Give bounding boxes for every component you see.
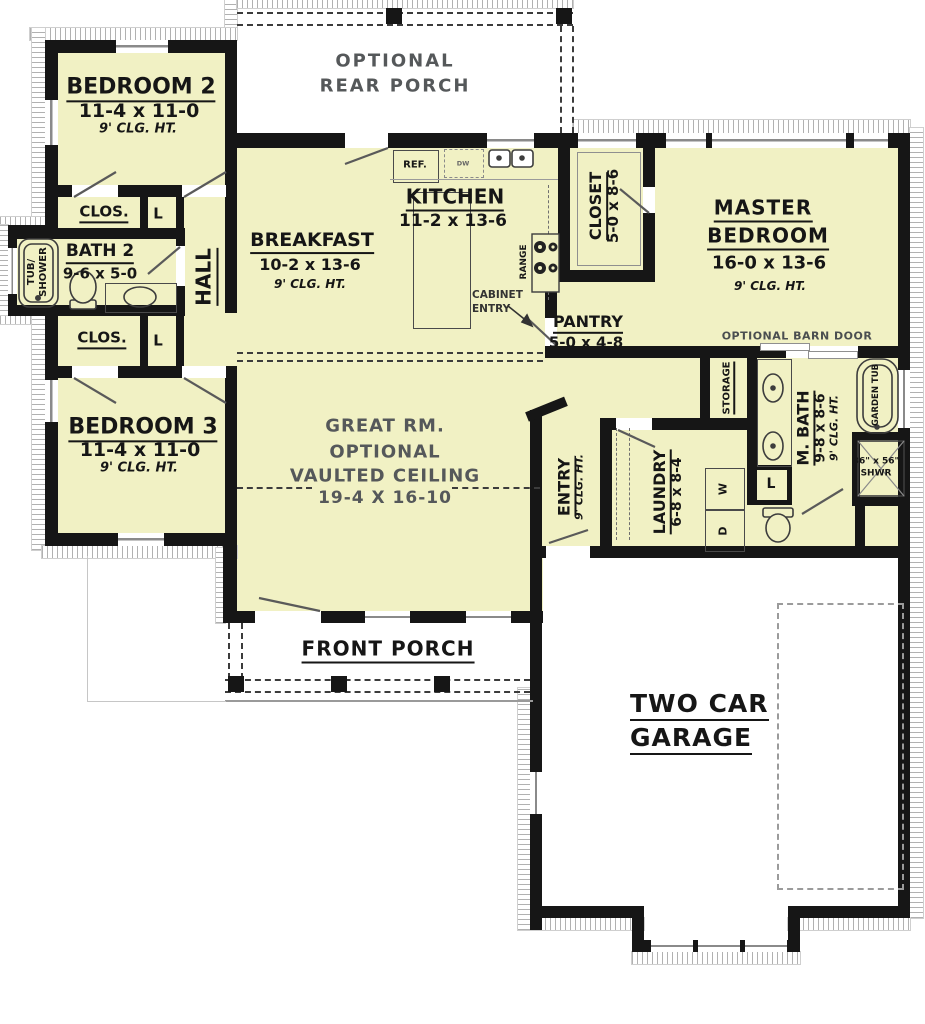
frontporch-roofline-2 (225, 691, 530, 693)
hatch-bay-left (0, 225, 8, 316)
dryer-label: D (718, 526, 731, 535)
window-greatrm-1 (365, 611, 410, 623)
master-dims: 16-0 x 13-6 (712, 254, 826, 275)
frontporch-edge-2 (241, 623, 243, 679)
window-closet-top (578, 133, 636, 148)
window-bed2-left (45, 100, 58, 145)
window-master-a (666, 133, 706, 148)
bedroom3-dims: 11-4 x 11-0 (80, 440, 201, 462)
hatch-rearporch-top (237, 0, 573, 8)
window-master-b (712, 133, 846, 148)
floor-plan: BEDROOM 2 11-4 x 11-0 9' CLG. HT. OPTION… (0, 0, 925, 1024)
mbath-label: M. BATH 9-8 x 8-6 9' CLG. HT. (794, 390, 841, 465)
wall-mbath-west (747, 358, 757, 505)
garage-door-panel-2 (698, 940, 740, 952)
hatch-garage-bl (530, 918, 644, 930)
gardentub-label: GARDEN TUB (872, 364, 882, 426)
opening-bed2-door-right (182, 185, 226, 197)
window-bed3-bottom (118, 533, 164, 546)
linen-mbath-label: L (767, 476, 776, 492)
wall-westwing-east-d (223, 533, 237, 623)
bedroom3-label: BEDROOM 3 (68, 414, 217, 439)
barn-door-note: OPTIONAL BARN DOOR (722, 331, 873, 344)
laundry-label: LAUNDRY 6-8 x 8-4 (651, 450, 685, 535)
wall-shower-bottom (852, 497, 910, 506)
shower-label: 36" x 56" SHWR (853, 456, 900, 479)
hatch-bay-top (0, 217, 45, 225)
hatch-east-side (910, 128, 923, 918)
wall-shower-top (852, 432, 910, 440)
range-label: RANGE (519, 245, 529, 280)
wall-master-west-a (643, 133, 655, 187)
clos-upper-label: CLOS. (79, 203, 128, 220)
kitchen-label: KITCHEN (406, 186, 504, 209)
kitchen-cabinet-line (548, 185, 549, 300)
wall-left-lower (45, 316, 58, 546)
master-label-1: MASTER (714, 197, 813, 220)
greatrm-label-2: OPTIONAL (329, 443, 440, 464)
storage-label: STORAGE (721, 361, 733, 414)
hatch-left-upper (32, 28, 45, 228)
breakfast-dims: 10-2 x 13-6 (259, 256, 361, 274)
garage-door-panel-3 (745, 940, 787, 952)
opening-bed3-door-left (72, 366, 118, 378)
window-bed2-top (116, 40, 168, 53)
wall-garage-bottom-left (530, 906, 644, 918)
laundry-shelf-2 (629, 428, 630, 540)
wall-linen-mbath-right (787, 465, 792, 505)
kitchen-counter-edge (390, 179, 558, 180)
pantry-label: PANTRY (553, 313, 623, 331)
wall-linen-hall-bot (176, 316, 184, 366)
hatch-bed3-bottom (42, 546, 237, 558)
master-ceiling: 9' CLG. HT. (734, 280, 806, 294)
bedroom2-label: BEDROOM 2 (66, 74, 215, 99)
kitchen-dims: 11-2 x 13-6 (399, 212, 507, 232)
bedroom2-dims: 11-4 x 11-0 (79, 101, 200, 123)
master-label-2: BEDROOM (707, 225, 829, 248)
laundry-shelf-1 (616, 428, 617, 540)
wall-linen-mbath-bottom (755, 500, 792, 505)
rearporch-post-2 (556, 8, 572, 24)
cabinet-entry-note: CABINET ENTRY (472, 289, 523, 316)
barn-door-panel-1 (760, 343, 810, 351)
greatrm-label-3: VAULTED CEILING (290, 467, 480, 488)
frontporch-column-3 (434, 676, 450, 692)
hatch-left-lower (32, 316, 45, 550)
rearporch-roofline-2 (237, 24, 573, 26)
tubshower-label: TUB/ SHOWER (26, 247, 50, 297)
bath2-dims: 9-6 x 5-0 (63, 265, 137, 282)
hatch-bed2-top (30, 28, 237, 40)
wall-kitchen-east (558, 133, 570, 282)
greatrm-label-1: GREAT RM. (325, 417, 445, 438)
wall-master-west-b (643, 213, 655, 282)
window-greatrm-2 (466, 611, 511, 623)
rearporch-roofline-1 (237, 12, 573, 14)
hatch-garage-bay (632, 952, 800, 964)
linen-lower-label: L (153, 332, 163, 349)
wall-clos-linen-bot (140, 316, 148, 366)
frontporch-column-2 (331, 676, 347, 692)
garage-label-1: TWO CAR (630, 690, 769, 719)
bedroom3-ceiling: 9' CLG. HT. (100, 462, 178, 477)
frontporch-edge-1 (228, 623, 230, 679)
masterclos-label: CLOSET 5-0 x 8-6 (587, 169, 623, 243)
frontporch-label: FRONT PORCH (302, 638, 475, 661)
bath2-label: BATH 2 (66, 242, 134, 262)
wall-closet-bottom (558, 270, 655, 282)
rearporch-edge-2 (572, 26, 574, 133)
porch-slab-left-h (87, 701, 226, 702)
window-gardentub (898, 370, 910, 428)
greatrm-label-4: 19-4 X 16-10 (318, 489, 452, 509)
window-master-c (854, 133, 888, 148)
ceiling-break-1 (237, 352, 543, 354)
dishwasher-label: DW (457, 160, 470, 167)
bath2-vanity (105, 283, 177, 313)
window-garage-west (530, 772, 542, 814)
wall-westwing-east-b (225, 133, 237, 313)
wall-storage-west (700, 358, 710, 418)
rearporch-post-1 (386, 8, 402, 24)
window-bay-left (8, 248, 17, 294)
entry-label: ENTRY 9' CLG. HT. (555, 454, 586, 520)
garage-door-panel-1 (651, 940, 693, 952)
opening-masterclos-door (643, 187, 655, 213)
rearporch-label-1: OPTIONAL (335, 52, 454, 73)
frontporch-column-1 (228, 676, 244, 692)
opening-laundry-door (616, 418, 652, 430)
opening-bed2-door-left (72, 185, 118, 197)
wall-bath2-top (17, 228, 185, 239)
hall-label: HALL (193, 248, 216, 306)
porch-slab-edge (225, 700, 533, 702)
garage-attic-outline (777, 603, 904, 890)
window-bed3-left (45, 380, 58, 422)
breakfast-label: BREAKFAST (250, 230, 374, 252)
wall-below-shower (855, 506, 865, 546)
porch-slab-left-v (87, 556, 88, 702)
washer-label: W (718, 483, 731, 495)
wall-laundry-west (600, 418, 612, 546)
wall-garage-bottom-right (788, 906, 910, 918)
opening-front-door (255, 611, 321, 623)
hatch-garage-west (518, 688, 530, 930)
hatch-garage-br (788, 918, 910, 930)
rearporch-edge-1 (560, 26, 562, 133)
frontporch-roofline-1 (225, 679, 530, 681)
garage-label-2: GARAGE (630, 724, 752, 753)
wall-westwing-east-a (225, 40, 237, 133)
breakfast-ceiling: 9' CLG. HT. (274, 278, 346, 292)
mbath-vanity (757, 359, 792, 467)
hatch-topwall-right (573, 120, 910, 133)
wall-westwing-east-c (225, 366, 237, 533)
rearporch-label-2: REAR PORCH (320, 77, 471, 98)
opening-bed3-door-right (182, 366, 226, 378)
refrigerator-label: REF. (403, 159, 427, 171)
window-kitchen-sink (487, 133, 534, 148)
bedroom2-ceiling: 9' CLG. HT. (99, 123, 177, 138)
clos-lower-label: CLOS. (77, 329, 126, 346)
barn-door-panel-2 (808, 351, 858, 359)
pantry-dims: 5-0 x 4-8 (549, 334, 623, 351)
opening-rearporch-door (345, 133, 388, 148)
opening-entry-door (546, 546, 590, 558)
ceiling-break-2 (237, 360, 543, 362)
opening-bath2-door (176, 246, 185, 286)
linen-upper-label: L (153, 205, 163, 222)
